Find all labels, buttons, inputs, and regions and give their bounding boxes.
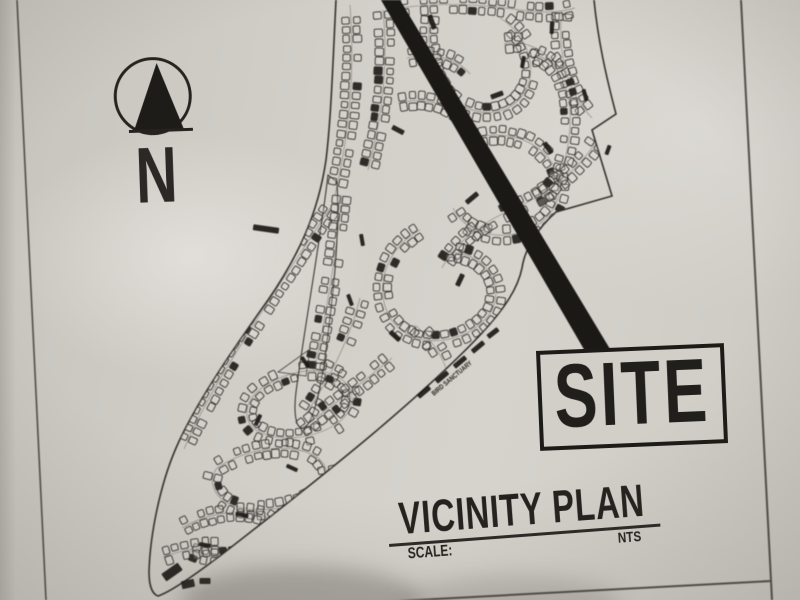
scale-value: NTS xyxy=(617,528,642,548)
photo-edge-shading xyxy=(0,0,16,600)
north-arrow: N xyxy=(105,50,211,213)
vicinity-plan-photo: BIRD SANCTUARY N SITE VICINITY PLAN SCAL… xyxy=(0,0,800,600)
site-callout-box: SITE xyxy=(536,343,728,451)
north-arrow-triangle xyxy=(132,62,184,131)
north-label: N xyxy=(121,129,193,222)
scale-label: SCALE: xyxy=(407,543,453,564)
north-arrow-icon xyxy=(112,56,193,137)
site-callout-label: SITE xyxy=(552,346,711,448)
map-lots xyxy=(162,0,609,566)
